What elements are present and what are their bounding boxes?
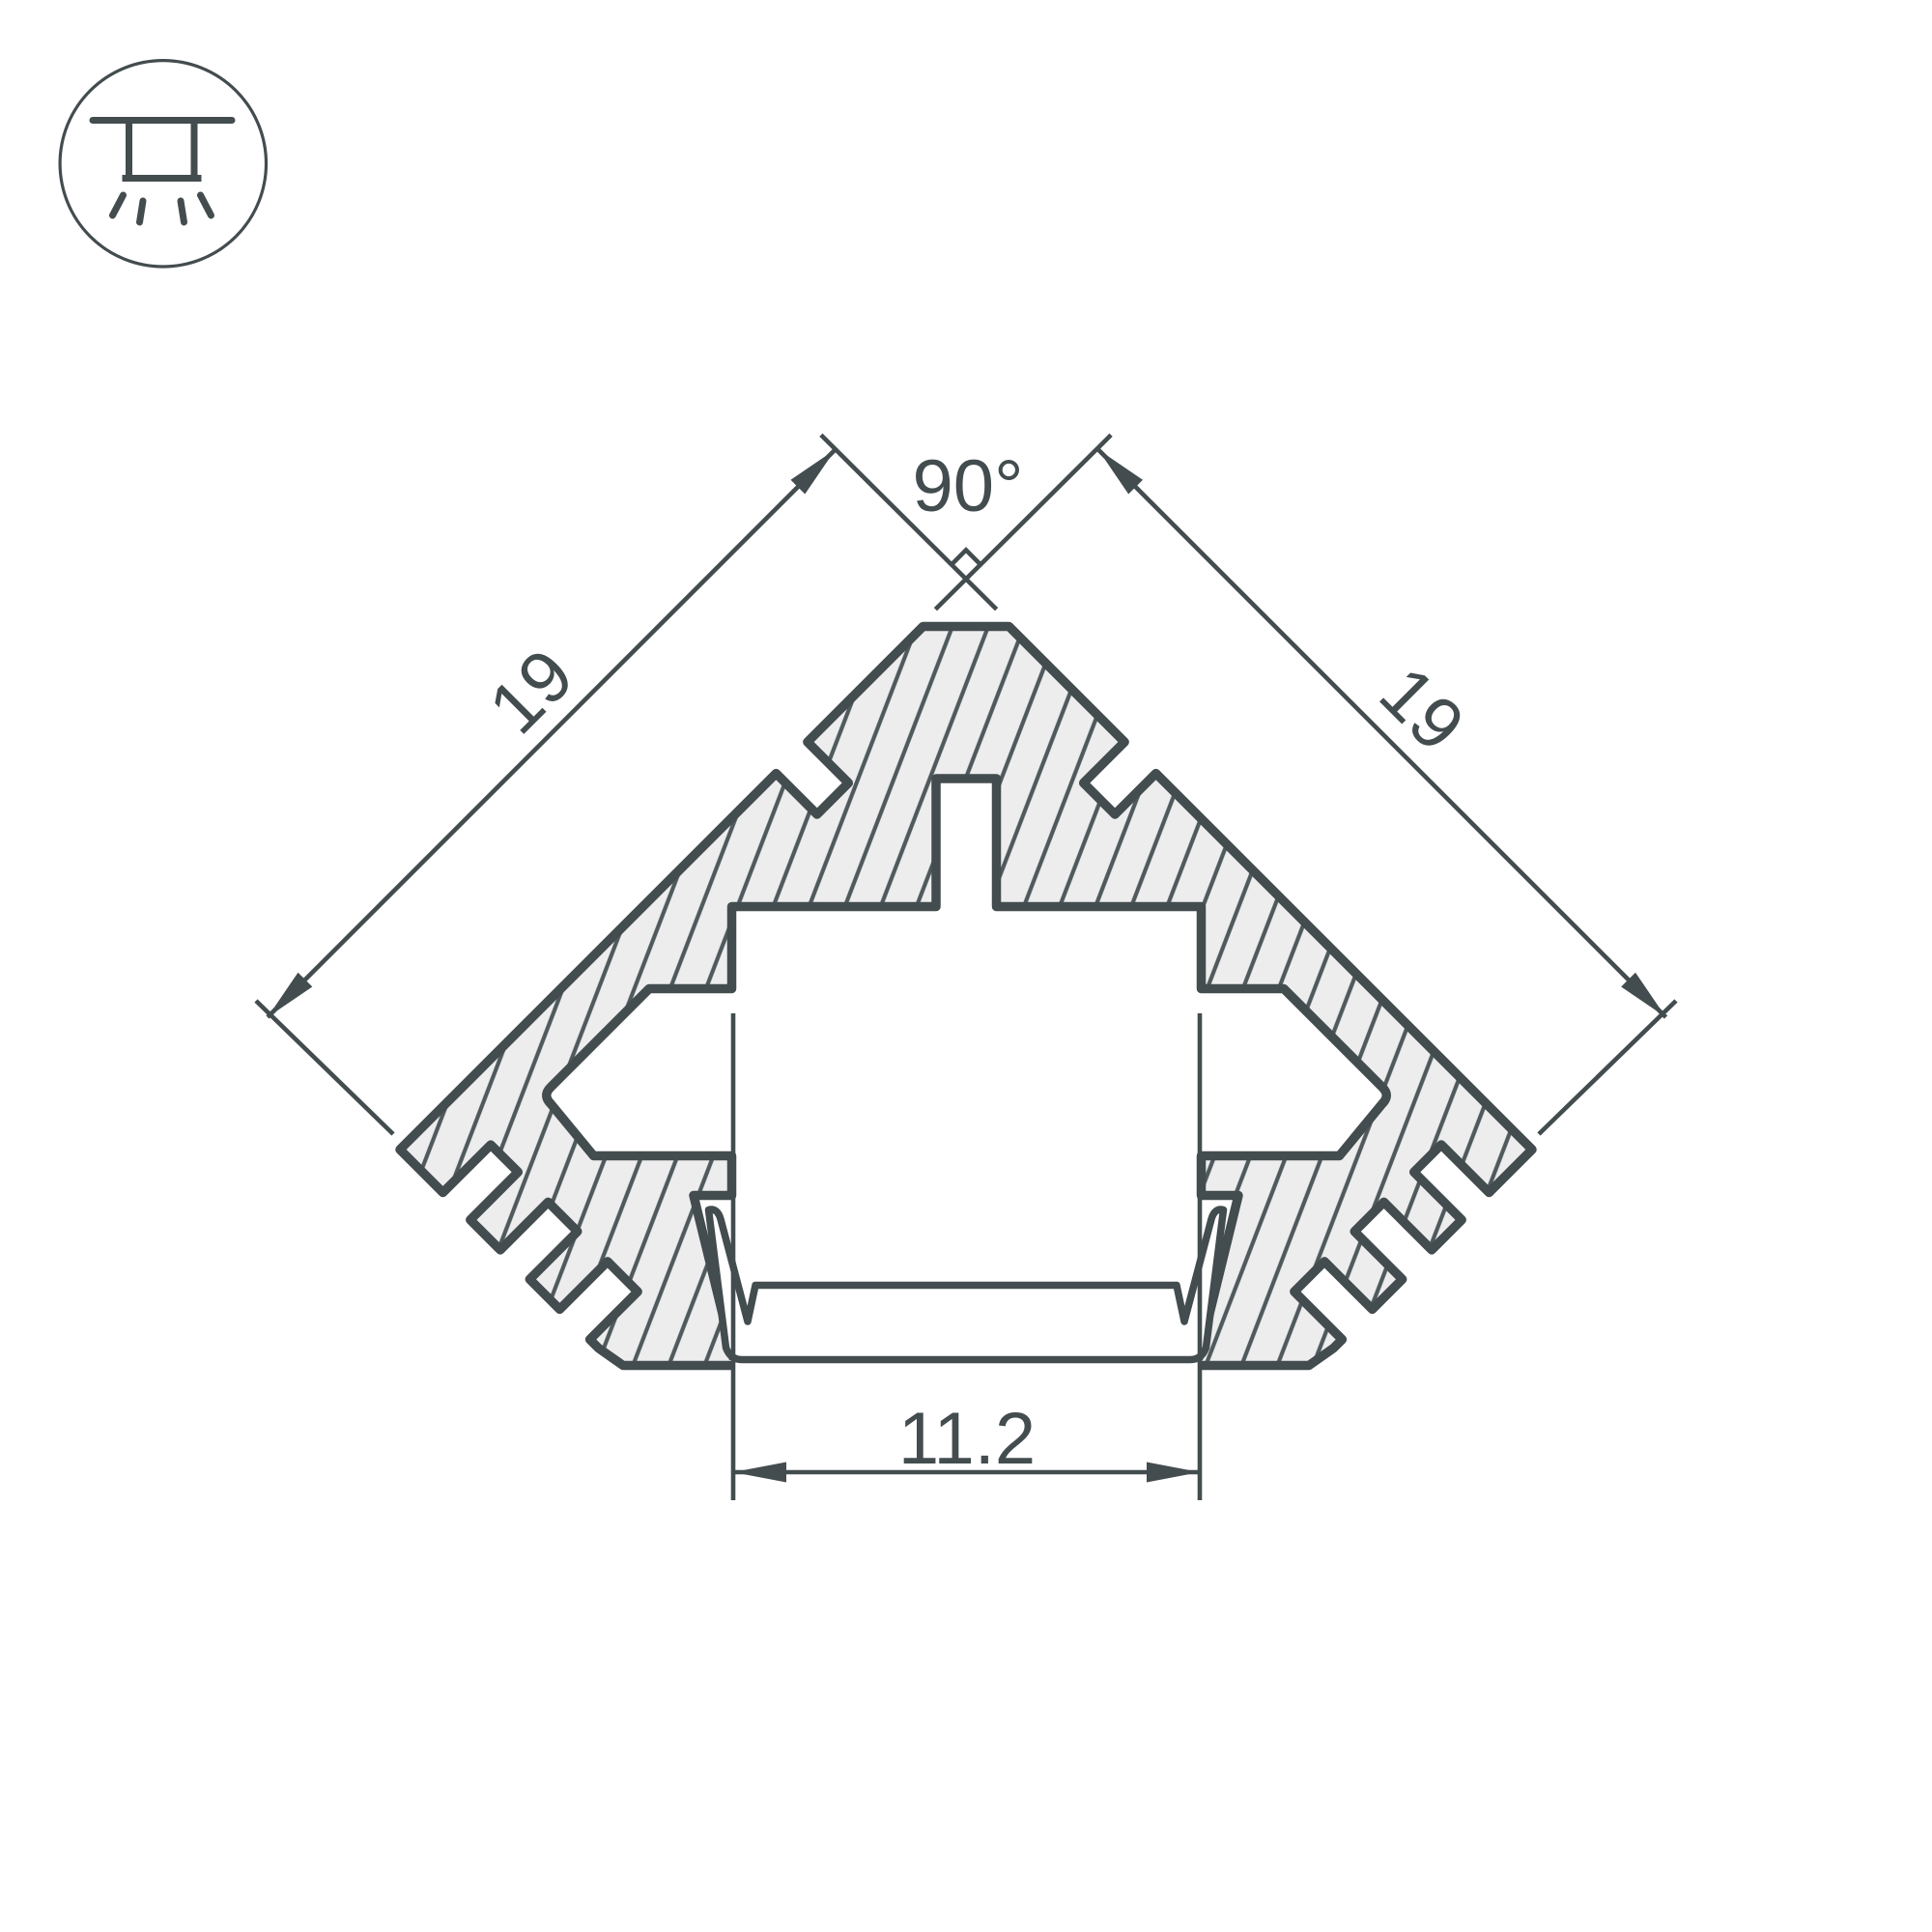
svg-text:90°: 90° — [913, 445, 1024, 527]
svg-text:11.2: 11.2 — [898, 1398, 1036, 1480]
